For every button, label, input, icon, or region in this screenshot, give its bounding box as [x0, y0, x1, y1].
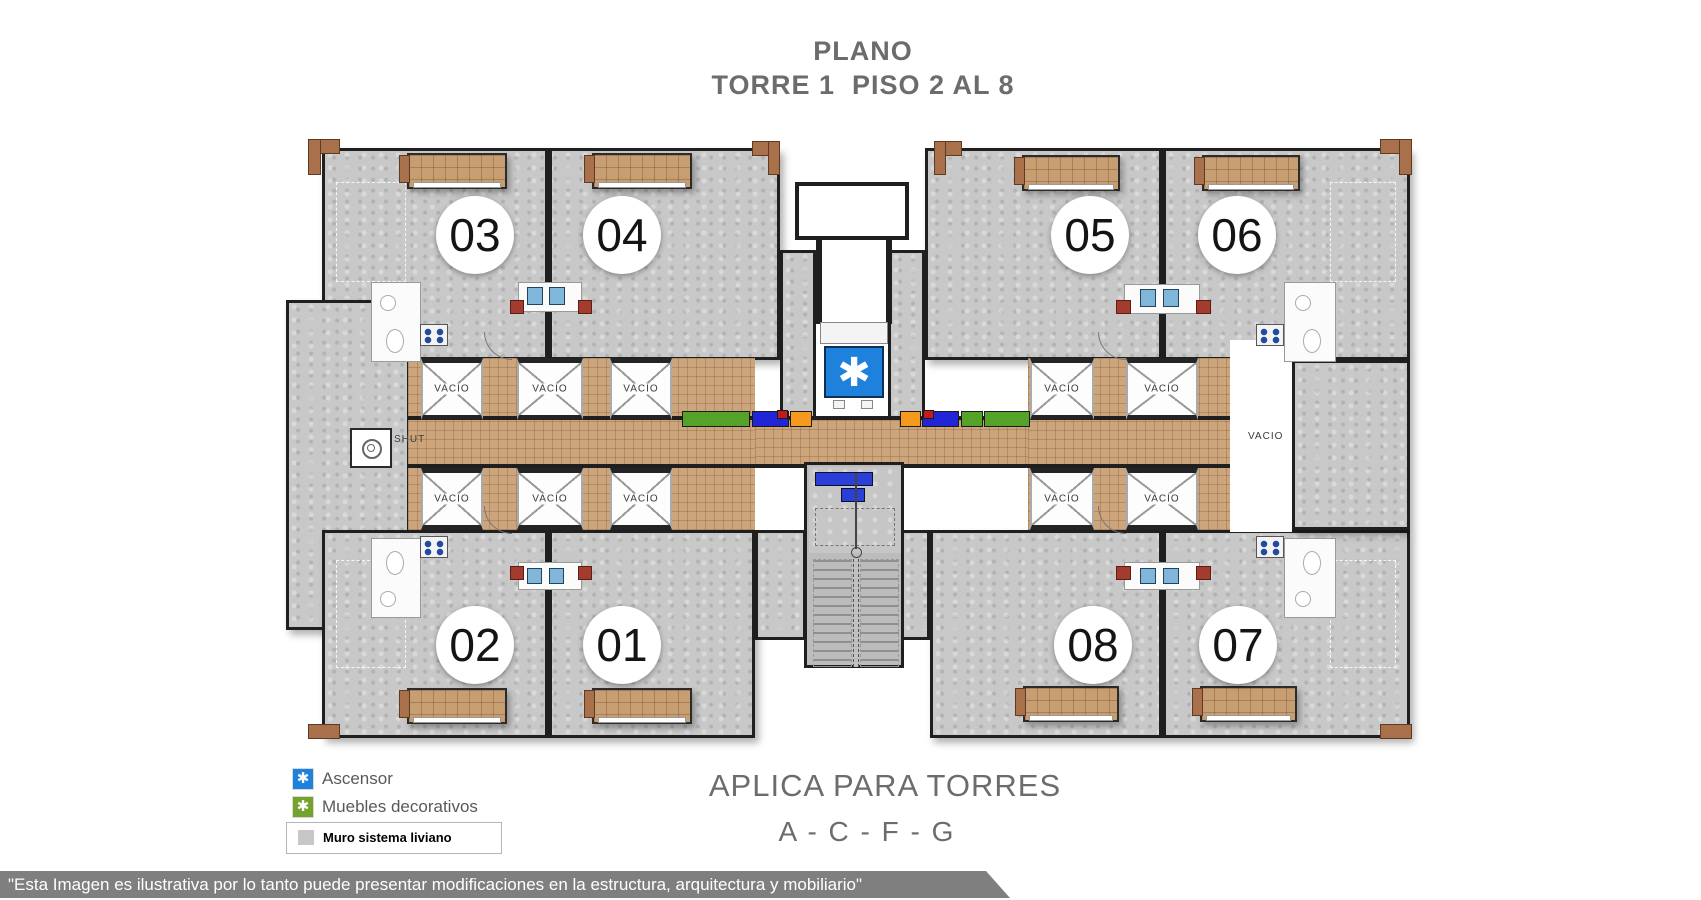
asterisk-glyph: ✱: [297, 798, 310, 815]
elevator-lobby-slot: [816, 240, 892, 324]
column: [510, 566, 524, 580]
vacio-well: VACIO: [421, 358, 483, 420]
toilet-fixture: [1303, 329, 1321, 353]
vacio-well: VACIO: [517, 468, 583, 530]
balcony-unit-07: [1200, 686, 1297, 722]
shared-bath-08-07: [1124, 562, 1200, 590]
column: [1196, 566, 1211, 580]
wing-bottom-right-filler: [900, 530, 930, 640]
bathroom-unit-07: [1284, 538, 1336, 618]
stair-shaft: [804, 462, 904, 668]
sink: [1163, 289, 1179, 307]
sink: [1163, 568, 1179, 584]
vacio-well-label: VACIO: [530, 494, 569, 505]
disclaimer-text: "Esta Imagen es ilustrativa por lo tanto…: [8, 875, 862, 894]
sink: [1140, 289, 1156, 307]
elevator-asterisk-glyph: ✱: [837, 351, 871, 395]
vacio-well-label: VACIO: [1142, 384, 1181, 395]
vacio-well-label: VACIO: [621, 384, 660, 395]
column: [578, 300, 592, 314]
vacio-well: VACIO: [1126, 468, 1198, 530]
floor-plan: ✱ VACIOVACIOVACIOVACIOVACIOVACIOVACIOVAC…: [0, 0, 1701, 900]
vacio-well: VACIO: [1126, 358, 1198, 420]
furniture-green: [984, 411, 1030, 427]
vacio-well-label: VACIO: [1042, 384, 1081, 395]
stove: [1256, 324, 1284, 346]
balcony-unit-03: [407, 153, 507, 189]
bathroom-unit-02: [371, 538, 421, 618]
facade-box: [795, 182, 909, 240]
vacio-well-label: VACIO: [1142, 494, 1181, 505]
stair-direction-line: [855, 473, 857, 549]
sink: [549, 287, 565, 305]
toilet-fixture: [386, 551, 404, 575]
sink-fixture: [1295, 591, 1311, 607]
legend-label-ascensor: Ascensor: [322, 769, 393, 789]
vacio-well: VACIO: [610, 468, 672, 530]
stove: [420, 536, 448, 558]
roof-cap: [308, 724, 340, 739]
vacio-well: VACIO: [1030, 468, 1094, 530]
column: [1196, 300, 1211, 314]
wing-top-right-annex: [888, 250, 925, 420]
column: [510, 300, 524, 314]
column: [1116, 566, 1131, 580]
vacio-well-label: VACIO: [530, 384, 569, 395]
elevator-legend-icon: ✱: [293, 769, 313, 789]
elevator-foot: [833, 400, 845, 409]
wardrobe-outline: [336, 182, 406, 282]
balcony-unit-06: [1202, 155, 1300, 191]
shut-chute-room: [350, 428, 392, 468]
stair-blue-cabinet: [841, 488, 865, 502]
furniture-green: [961, 411, 983, 427]
vacio-well-label: VACIO: [621, 494, 660, 505]
balcony-unit-05: [1022, 155, 1120, 191]
legend-label-muro: Muro sistema liviano: [323, 830, 452, 845]
stove: [420, 324, 448, 346]
balcony-unit-01: [592, 688, 692, 724]
sink-fixture: [380, 295, 396, 311]
furniture-orange: [790, 411, 812, 427]
elevator-icon: ✱: [824, 346, 884, 398]
unit-badge-04: 04: [583, 196, 661, 274]
wall-swatch: [298, 830, 314, 845]
toilet-fixture: [1303, 551, 1321, 575]
unit-badge-05: 05: [1051, 196, 1129, 274]
balcony-unit-08: [1023, 686, 1119, 722]
legend-label-muebles: Muebles decorativos: [322, 797, 478, 817]
disclaimer-banner: "Esta Imagen es ilustrativa por lo tanto…: [0, 871, 1010, 898]
vacio-well-label: VACIO: [1042, 494, 1081, 505]
roof-cap: [1399, 139, 1412, 175]
stair-stringer: [853, 559, 859, 667]
sink-fixture: [380, 591, 396, 607]
sink: [1140, 568, 1156, 584]
toilet-fixture: [386, 329, 404, 353]
unit-badge-07: 07: [1199, 606, 1277, 684]
legend-wall-box: Muro sistema liviano: [286, 822, 502, 854]
bathroom-unit-06: [1284, 282, 1336, 362]
sink: [527, 568, 542, 584]
applies-heading: APLICA PARA TORRES: [705, 768, 1065, 804]
asterisk-glyph: ✱: [297, 770, 310, 787]
floor-plan-page: { "title": { "line1": "PLANO", "line2": …: [0, 0, 1701, 900]
elevator-machine-strip: [820, 322, 888, 344]
roof-cap: [768, 141, 780, 175]
wing-bottom-left-filler: [755, 530, 806, 640]
wardrobe-outline: [1330, 182, 1396, 282]
stair-treads-right: [860, 559, 899, 667]
stair-blue-cabinet: [815, 472, 873, 486]
vacio-well-label: VACIO: [432, 384, 471, 395]
column: [578, 566, 592, 580]
furniture-red: [777, 410, 788, 419]
roof-cap: [1380, 724, 1412, 739]
plan-label-shut: SHUT: [394, 434, 425, 445]
sink: [549, 568, 564, 584]
column: [1116, 300, 1131, 314]
party-wall-03-04: [545, 148, 552, 360]
bathroom-unit-03: [371, 282, 421, 362]
roof-cap: [308, 139, 321, 175]
wing-top-left-annex: [780, 250, 816, 420]
balcony-unit-04: [592, 153, 692, 189]
wing-right-column: [1292, 360, 1410, 530]
vacio-well: VACIO: [1030, 358, 1094, 420]
stair-treads-left: [813, 559, 852, 667]
sink: [527, 287, 543, 305]
vacio-well: VACIO: [610, 358, 672, 420]
furniture-orange: [900, 411, 921, 427]
plan-label-vacio: VACIO: [1248, 431, 1283, 442]
unit-badge-02: 02: [436, 606, 514, 684]
sink-fixture: [1295, 295, 1311, 311]
vacio-well-label: VACIO: [432, 494, 471, 505]
shared-bath-05-06: [1124, 284, 1200, 314]
unit-badge-08: 08: [1054, 606, 1132, 684]
furniture-red: [923, 410, 934, 419]
vacio-well: VACIO: [517, 358, 583, 420]
applies-towers: A - C - F - G: [687, 816, 1047, 848]
stove: [1256, 536, 1284, 558]
roof-cap: [934, 141, 946, 175]
balcony-unit-02: [407, 688, 507, 724]
furniture-legend-icon: ✱: [293, 797, 313, 817]
vacio-well: VACIO: [421, 468, 483, 530]
unit-badge-01: 01: [583, 606, 661, 684]
elevator-foot: [861, 400, 873, 409]
unit-badge-06: 06: [1198, 196, 1276, 274]
furniture-green: [682, 411, 750, 427]
unit-badge-03: 03: [436, 196, 514, 274]
party-wall-05-06: [1159, 148, 1166, 360]
wardrobe-outline: [1330, 560, 1396, 668]
